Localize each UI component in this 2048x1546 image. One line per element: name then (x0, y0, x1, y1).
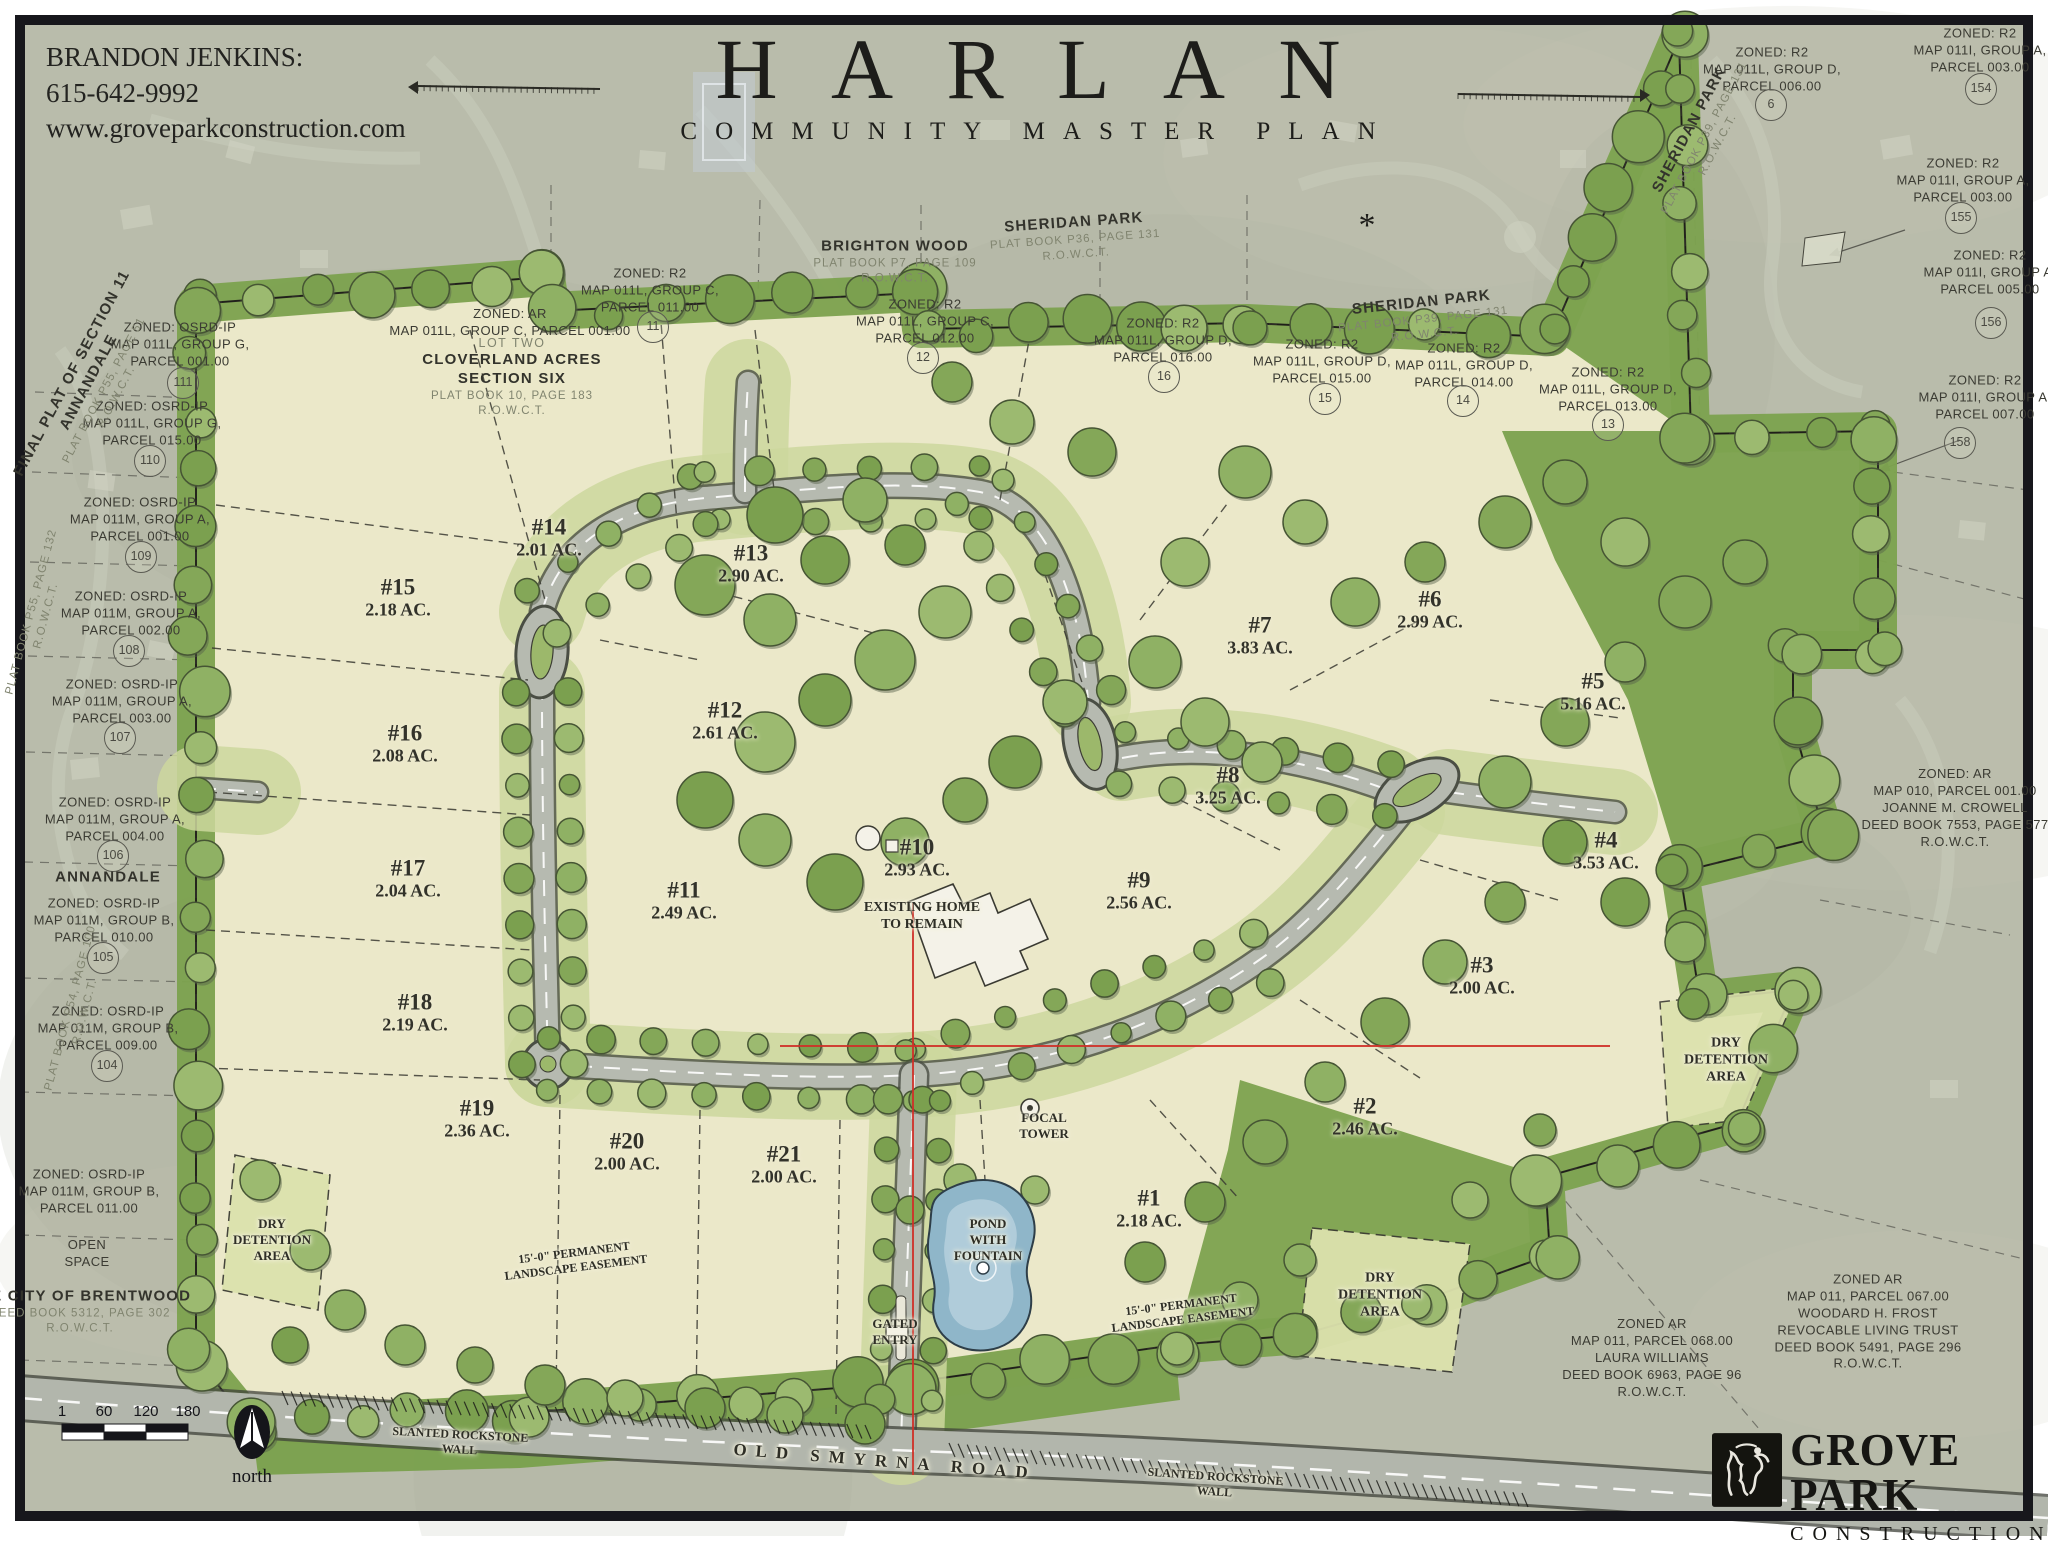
parcel-zoning-label: ZONED: OSRD-IPMAP 011M, GROUP A,PARCEL 0… (70, 495, 210, 546)
lot-label: #22.46 AC. (1332, 1094, 1398, 1139)
lot-label: #112.49 AC. (651, 878, 717, 923)
feature-label: DRYDETENTIONAREA (233, 1216, 311, 1264)
lot-label: #102.93 AC. (884, 835, 950, 880)
parcel-zoning-label: ZONED: OSRD-IPMAP 011M, GROUP A,PARCEL 0… (52, 677, 192, 728)
parcel-number-badge: 16 (1148, 361, 1180, 393)
contact-website: www.groveparkconstruction.com (46, 111, 406, 147)
north-label: north (232, 1466, 272, 1488)
lot-label: #152.18 AC. (365, 575, 431, 620)
plan-subtitle: COMMUNITY MASTER PLAN (680, 118, 1393, 146)
parcel-zoning-label: ZONED: R2MAP 011L, GROUP D,PARCEL 016.00 (1094, 316, 1232, 367)
contact-name: BRANDON JENKINS: (46, 40, 406, 76)
lot-label: #12.18 AC. (1116, 1186, 1182, 1231)
lot-label: #132.90 AC. (718, 541, 784, 586)
lot-label: #142.01 AC. (516, 515, 582, 560)
parcel-number-badge: 14 (1447, 385, 1479, 417)
parcel-number-badge: 154 (1965, 73, 1997, 105)
feature-label: 15'-0" PERMANENTLANDSCAPE EASEMENT (502, 1237, 648, 1284)
parcel-number-badge: 15 (1309, 383, 1341, 415)
lion-emblem-icon (1712, 1428, 1782, 1512)
subdivision-label: THE CITY OF BRENTWOODDEED BOOK 5312, PAG… (0, 1288, 191, 1337)
parcel-number-badge: 13 (1592, 409, 1624, 441)
logo-name: GROVE PARK (1790, 1428, 2048, 1518)
lot-label: #62.99 AC. (1397, 587, 1463, 632)
lot-label: #43.53 AC. (1573, 828, 1639, 873)
contact-block: BRANDON JENKINS: 615-642-9992 www.grovep… (46, 40, 406, 147)
subdivision-label: LOT TWOCLOVERLAND ACRESSECTION SIXPLAT B… (422, 335, 601, 419)
feature-label: 15'-0" PERMANENTLANDSCAPE EASEMENT (1109, 1289, 1255, 1336)
parcel-number-badge: 11 (637, 311, 669, 343)
contact-phone: 615-642-9992 (46, 76, 406, 112)
feature-label: DRYDETENTIONAREA (1338, 1269, 1422, 1320)
lot-label: #92.56 AC. (1106, 868, 1172, 913)
parcel-zoning-label: ZONED: ARMAP 010, PARCEL 001.00JOANNE M.… (1861, 766, 2048, 850)
lot-label: #212.00 AC. (751, 1142, 817, 1187)
parcel-zoning-label: ZONED: R2MAP 011L, GROUP D,PARCEL 013.00 (1539, 365, 1677, 416)
parcel-number-badge: 108 (113, 635, 145, 667)
feature-label: SLANTED ROCKSTONEWALL (1146, 1465, 1284, 1504)
parcel-number-badge: 158 (1944, 427, 1976, 459)
parcel-zoning-label: OPENSPACE (64, 1237, 109, 1271)
parcel-number-badge: 111 (167, 367, 199, 399)
feature-label: SLANTED ROCKSTONEWALL (391, 1424, 529, 1460)
parcel-zoning-label: ZONED ARMAP 011, PARCEL 068.00LAURA WILL… (1562, 1316, 1741, 1400)
parcel-zoning-label: ZONED: R2MAP 011I, GROUP A,PARCEL 007.00 (1919, 373, 2048, 424)
map-labels-layer: #142.01 AC.#152.18 AC.#132.90 AC.#162.08… (0, 0, 2048, 1536)
lot-label: #32.00 AC. (1449, 953, 1515, 998)
feature-label: DRYDETENTIONAREA (1684, 1034, 1768, 1085)
grove-park-logo: GROVE PARK CONSTRUCTION (1712, 1428, 2048, 1546)
parcel-zoning-label: ZONED: R2MAP 011I, GROUP A,PARCEL 003.00 (1914, 26, 2047, 77)
lot-label: #162.08 AC. (372, 721, 438, 766)
subdivision-label: ANNANDALE (55, 869, 161, 888)
feature-label: GATEDENTRY (872, 1316, 917, 1348)
lot-label: #172.04 AC. (375, 856, 441, 901)
lot-label: #73.83 AC. (1227, 613, 1293, 658)
parcel-zoning-label: ZONED: R2MAP 011L, GROUP D,PARCEL 014.00 (1395, 341, 1533, 392)
parcel-number-badge: 109 (125, 541, 157, 573)
parcel-number-badge: 107 (104, 722, 136, 754)
parcel-zoning-label: ZONED: R2MAP 011I, GROUP A,PARCEL 003.00 (1897, 156, 2030, 207)
parcel-number-badge: 110 (134, 445, 166, 477)
parcel-number-badge: 6 (1755, 89, 1787, 121)
parcel-number-badge: 104 (91, 1050, 123, 1082)
parcel-zoning-label: ZONED: R2MAP 011L, GROUP C,PARCEL 012.00 (856, 297, 994, 348)
lot-label: #55.16 AC. (1560, 669, 1626, 714)
parcel-number-badge: 12 (907, 342, 939, 374)
feature-label: EXISTING HOMETO REMAIN (864, 899, 980, 933)
feature-label: PONDWITHFOUNTAIN (954, 1216, 1022, 1264)
logo-subtitle: CONSTRUCTION (1790, 1523, 2048, 1546)
subdivision-label: BRIGHTON WOODPLAT BOOK P7, PAGE 109R.O.W… (813, 238, 976, 287)
lot-label: #182.19 AC. (382, 990, 448, 1035)
parcel-zoning-label: ZONED: OSRD-IPMAP 011M, GROUP A,PARCEL 0… (61, 589, 201, 640)
parcel-number-badge: 156 (1975, 307, 2007, 339)
parcel-number-badge: 155 (1945, 202, 1977, 234)
parcel-zoning-label: ZONED ARMAP 011, PARCEL 067.00WOODARD H.… (1774, 1271, 1961, 1372)
lot-label: #192.36 AC. (444, 1096, 510, 1141)
asterisk-mark: * (1359, 207, 1376, 245)
parcel-zoning-label: ZONED: OSRD-IPMAP 011M, GROUP A,PARCEL 0… (45, 795, 185, 846)
feature-label: OLD SMYRNA ROAD (733, 1440, 1038, 1485)
master-plan-sheet: 160120180 #142.01 AC.#152.18 AC.#132.90 … (0, 0, 2048, 1536)
subdivision-label: SHERIDAN PARKPLAT BOOK P36, PAGE 131R.O.… (988, 208, 1162, 268)
feature-label: FOCALTOWER (1019, 1110, 1069, 1142)
lot-label: #202.00 AC. (594, 1129, 660, 1174)
parcel-zoning-label: ZONED: R2MAP 011I, GROUP A,PARCEL 005.00 (1924, 248, 2048, 299)
parcel-zoning-label: ZONED: OSRD-IPMAP 011M, GROUP B,PARCEL 0… (19, 1167, 160, 1218)
plan-title: HARLAN (680, 26, 1429, 112)
lot-label: #122.61 AC. (692, 698, 758, 743)
plan-title-block: HARLAN COMMUNITY MASTER PLAN (680, 26, 1375, 146)
lot-label: #83.25 AC. (1195, 763, 1261, 808)
parcel-zoning-label: ZONED: R2MAP 011L, GROUP C,PARCEL 011.00 (581, 266, 719, 317)
parcel-number-badge: 106 (97, 840, 129, 872)
